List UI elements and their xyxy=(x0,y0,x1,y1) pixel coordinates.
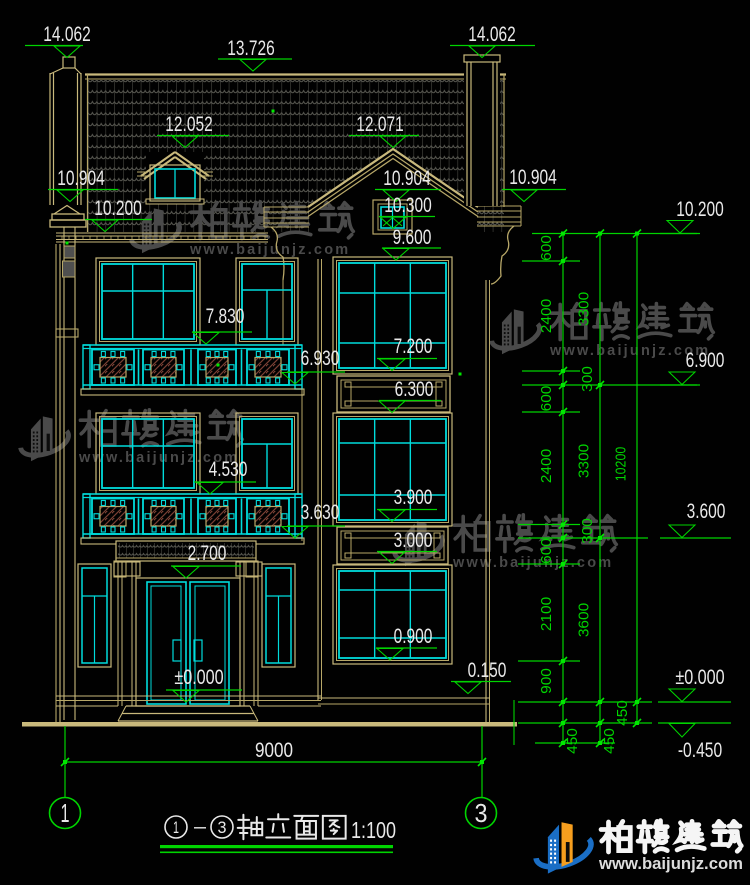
svg-text:1: 1 xyxy=(173,818,179,837)
svg-text:6.930: 6.930 xyxy=(301,346,340,370)
svg-text:1: 1 xyxy=(61,798,70,828)
svg-text:10.904: 10.904 xyxy=(57,166,104,190)
svg-text:0.900: 0.900 xyxy=(394,624,433,648)
svg-text:3: 3 xyxy=(218,818,227,837)
svg-text:12.071: 12.071 xyxy=(356,112,403,136)
svg-text:7.200: 7.200 xyxy=(394,334,433,358)
svg-text:600: 600 xyxy=(538,538,555,564)
svg-text:9.600: 9.600 xyxy=(393,225,432,249)
svg-text:1:100: 1:100 xyxy=(351,817,396,843)
svg-text:10.904: 10.904 xyxy=(509,165,556,189)
svg-text:±0.000: ±0.000 xyxy=(174,665,223,689)
svg-text:2400: 2400 xyxy=(538,449,555,483)
svg-text:3.900: 3.900 xyxy=(394,485,433,509)
svg-text:10.904: 10.904 xyxy=(383,166,430,190)
svg-text:2.700: 2.700 xyxy=(188,541,227,565)
svg-text:600: 600 xyxy=(538,386,555,412)
svg-text:10200: 10200 xyxy=(613,447,630,482)
svg-text:9000: 9000 xyxy=(255,738,293,762)
svg-text:13.726: 13.726 xyxy=(227,36,274,60)
svg-text:–: – xyxy=(194,816,207,838)
svg-text:www.baijunjz.com: www.baijunjz.com xyxy=(598,855,743,873)
svg-text:4.530: 4.530 xyxy=(209,457,248,481)
svg-text:3300: 3300 xyxy=(576,444,593,478)
svg-text:www.baijunjz.com: www.baijunjz.com xyxy=(189,242,350,258)
svg-text:±0.000: ±0.000 xyxy=(675,665,724,689)
svg-text:3600: 3600 xyxy=(576,603,593,637)
svg-text:3.630: 3.630 xyxy=(301,500,340,524)
svg-text:450: 450 xyxy=(564,728,581,754)
svg-text:6.300: 6.300 xyxy=(395,377,434,401)
svg-text:7.830: 7.830 xyxy=(206,304,245,328)
svg-text:450: 450 xyxy=(614,700,631,726)
svg-text:www.baijunjz.com: www.baijunjz.com xyxy=(452,555,613,571)
svg-text:300: 300 xyxy=(579,518,596,544)
svg-text:300: 300 xyxy=(579,366,596,392)
svg-text:3.000: 3.000 xyxy=(394,528,433,552)
svg-text:3300: 3300 xyxy=(576,292,593,326)
svg-text:14.062: 14.062 xyxy=(43,22,90,46)
svg-text:2400: 2400 xyxy=(538,299,555,333)
svg-text:3.600: 3.600 xyxy=(687,499,726,523)
svg-text:14.062: 14.062 xyxy=(468,22,515,46)
svg-text:600: 600 xyxy=(538,235,555,261)
svg-text:450: 450 xyxy=(601,728,618,754)
svg-text:-0.450: -0.450 xyxy=(678,738,722,762)
svg-text:10.300: 10.300 xyxy=(384,193,431,217)
svg-text:900: 900 xyxy=(538,668,555,694)
svg-text:6.900: 6.900 xyxy=(686,348,725,372)
svg-text:10.200: 10.200 xyxy=(676,197,723,221)
svg-text:12.052: 12.052 xyxy=(165,112,212,136)
svg-text:10.200: 10.200 xyxy=(94,196,141,220)
svg-text:0.150: 0.150 xyxy=(468,658,507,682)
svg-text:2100: 2100 xyxy=(538,597,555,631)
svg-text:3: 3 xyxy=(475,798,488,828)
